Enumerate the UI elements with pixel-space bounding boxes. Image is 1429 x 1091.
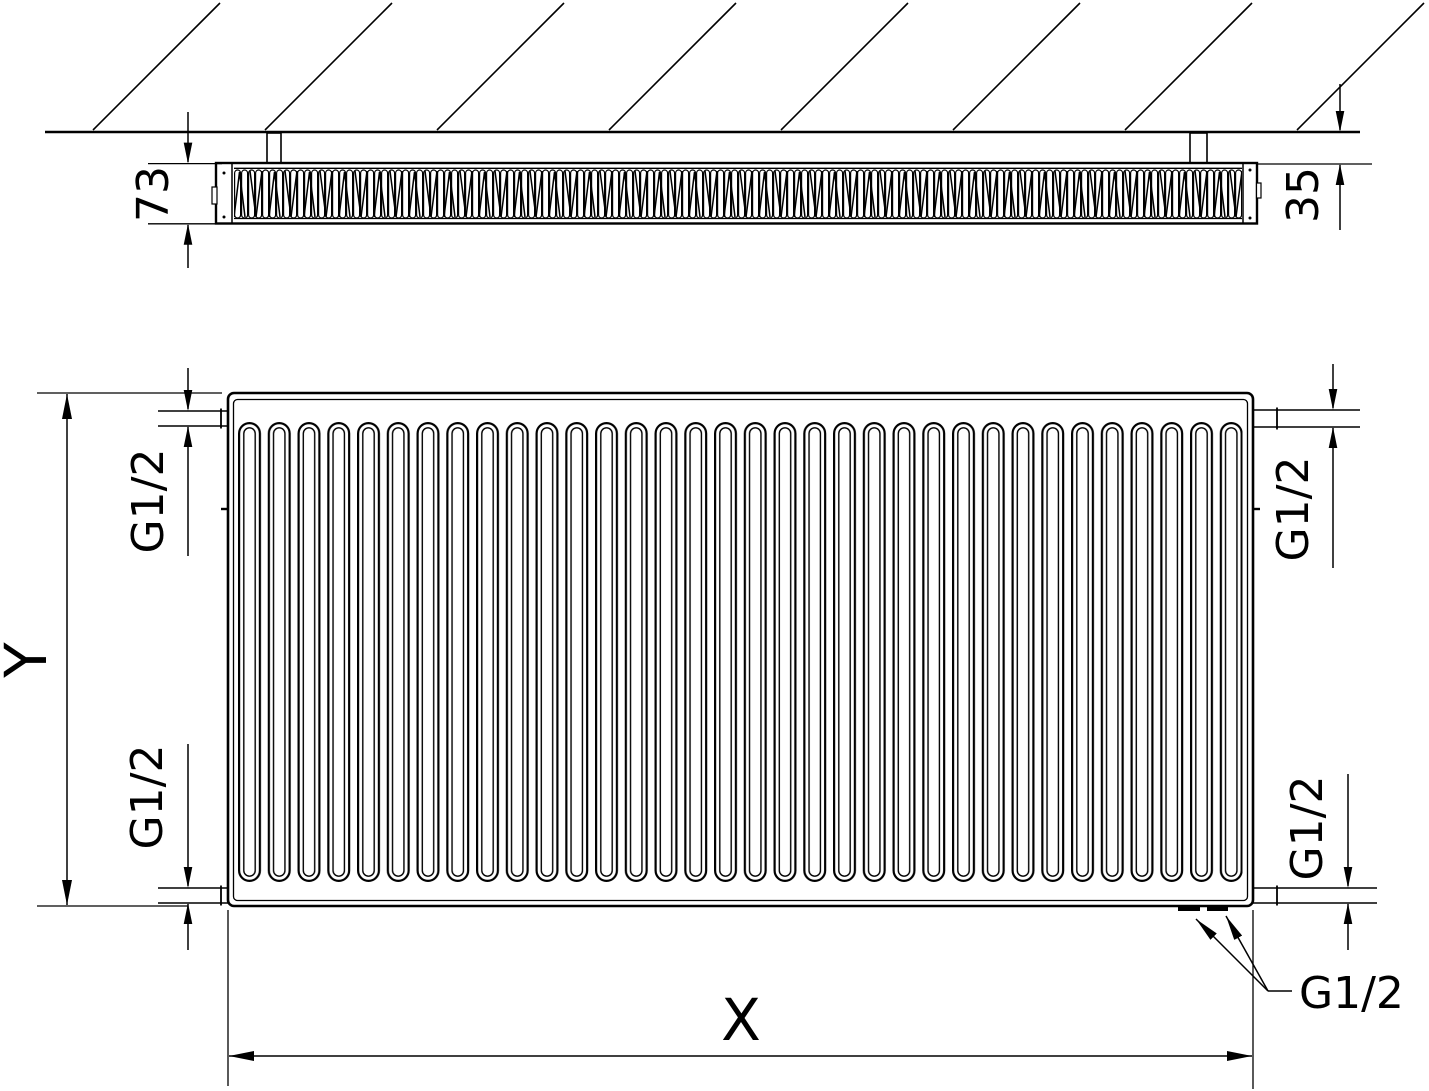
width-label: X (721, 986, 761, 1054)
dim-conn-bottom-right: G1/2 (1282, 774, 1352, 950)
dim-conn-top-right: G1/2 (1268, 364, 1337, 568)
depth-label: 73 (128, 166, 179, 222)
panel-grooves (238, 422, 1243, 882)
bottom-connection-callout: G1/2 (1178, 907, 1404, 1020)
radiator-front-panel (221, 393, 1260, 906)
wall-distance-label: 35 (1278, 167, 1329, 223)
conn-bottom-left-label: G1/2 (122, 745, 173, 850)
wall-bracket-right (1190, 133, 1207, 163)
wall-bracket-left (267, 133, 281, 163)
wall-hatching (93, 3, 1424, 130)
dim-depth-73: 73 (128, 112, 222, 268)
radiator-dimension-drawing: 73 35 (0, 0, 1429, 1091)
convector-fins (234, 169, 1242, 219)
dim-conn-top-left: G1/2 (123, 368, 192, 556)
dim-width-x: X (228, 910, 1253, 1089)
height-label: Y (0, 642, 60, 679)
conn-bottom-right-label: G1/2 (1282, 776, 1333, 881)
dim-wall-distance-35: 35 (1257, 84, 1372, 230)
conn-top-right-label: G1/2 (1268, 457, 1319, 562)
radiator-top-view-body (212, 163, 1261, 224)
conn-top-left-label: G1/2 (123, 449, 174, 554)
dim-conn-bottom-left: G1/2 (122, 744, 192, 950)
conn-bottom-callout-label: G1/2 (1299, 968, 1404, 1019)
drawing-canvas: 73 35 (0, 0, 1429, 1091)
front-view: G1/2 G1/2 G1/2 G1/2 (0, 364, 1404, 1089)
top-view: 73 35 (45, 3, 1424, 268)
